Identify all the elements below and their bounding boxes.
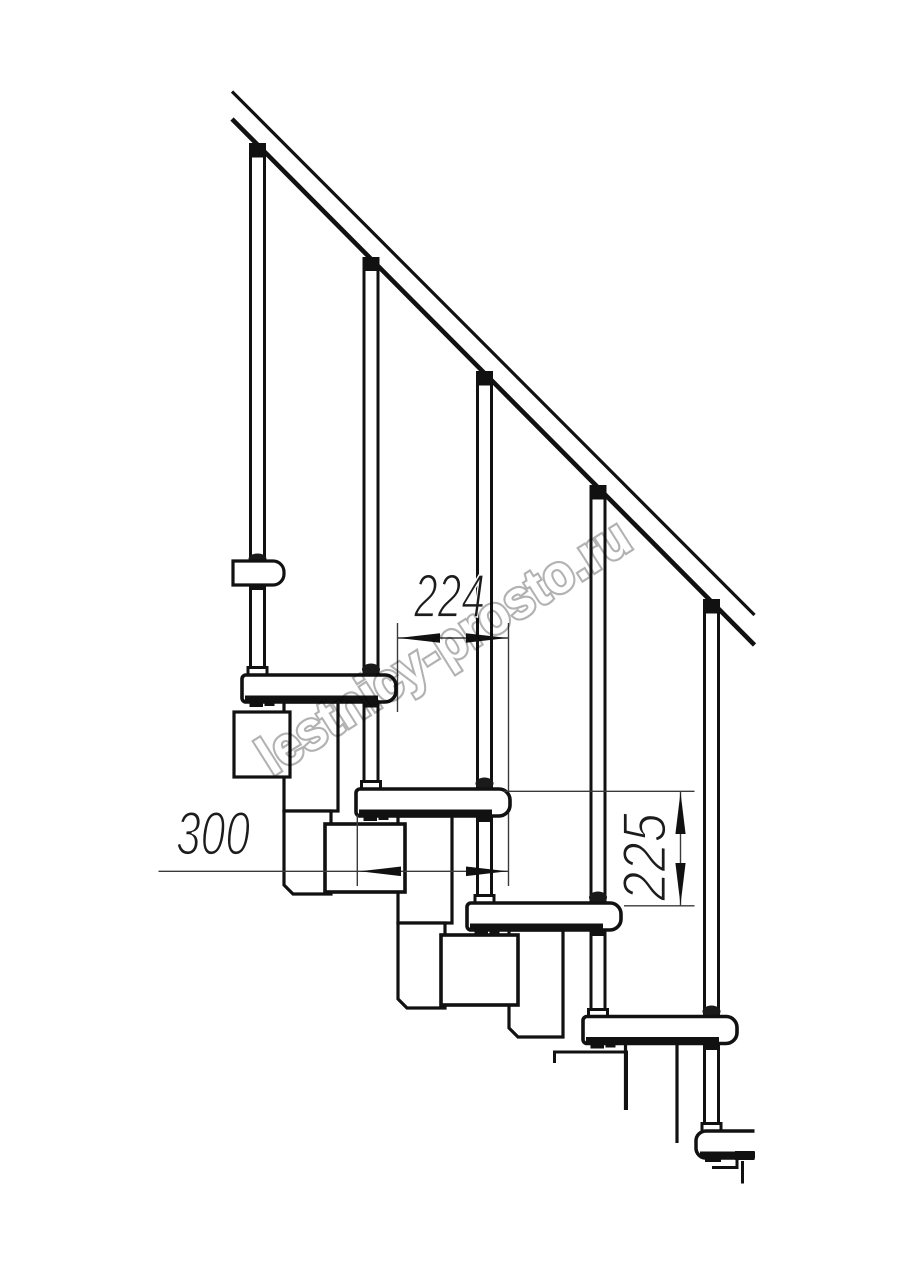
svg-text:225: 225 bbox=[611, 812, 679, 902]
svg-text:300: 300 bbox=[176, 800, 250, 868]
